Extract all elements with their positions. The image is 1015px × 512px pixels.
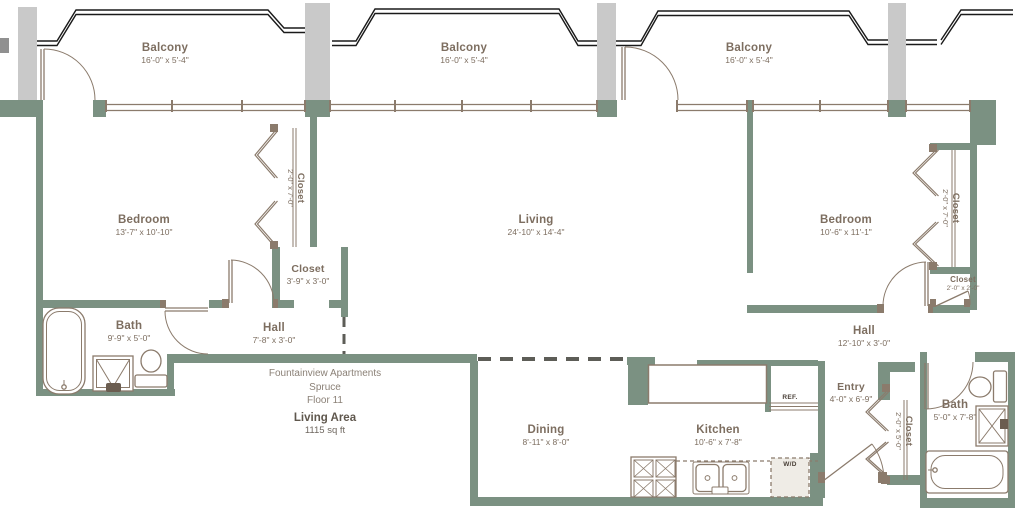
refrigerator <box>769 403 818 410</box>
vanity <box>135 375 167 387</box>
neighbor-structure <box>0 38 9 53</box>
doors <box>41 47 973 481</box>
door-swing-arcs <box>44 47 973 480</box>
living-area-value: 1115 sq ft <box>225 425 425 436</box>
column <box>18 7 37 101</box>
door-leaves <box>41 47 968 481</box>
column <box>888 3 906 101</box>
living-area-label: Living Area <box>225 412 425 425</box>
opening-dashes <box>344 317 627 359</box>
shower-drain <box>106 383 121 392</box>
toilet-tank <box>994 371 1007 402</box>
kitchen-fixtures <box>631 365 818 497</box>
bath-1-fixtures <box>43 308 167 394</box>
washer-dryer-label: W/D <box>770 461 810 468</box>
refrigerator-label: REF. <box>770 394 810 401</box>
toilet <box>141 350 161 372</box>
balcony-outline <box>35 9 1013 46</box>
walls <box>0 100 1015 508</box>
sink-faucet <box>712 487 728 494</box>
apartment-title: Fountainview Apartments <box>225 367 425 381</box>
tub-faucet <box>62 385 66 389</box>
column <box>597 3 616 101</box>
windows <box>106 100 970 112</box>
columns <box>0 3 906 101</box>
plan-info-block: Fountainview Apartments Spruce Floor 11 … <box>225 367 425 436</box>
floor-plan-drawing <box>0 0 1015 512</box>
toilet <box>969 377 991 397</box>
unit-name: Spruce <box>225 381 425 395</box>
floor-number: Floor 11 <box>225 394 425 408</box>
island-counter <box>649 365 767 403</box>
shower-faucet <box>1000 419 1008 429</box>
bath-2-fixtures <box>926 371 1008 493</box>
tub-faucet <box>933 468 937 472</box>
floor-plan: Balcony 16'-0" x 5'-4" Balcony 16'-0" x … <box>0 0 1015 512</box>
column <box>305 3 330 101</box>
